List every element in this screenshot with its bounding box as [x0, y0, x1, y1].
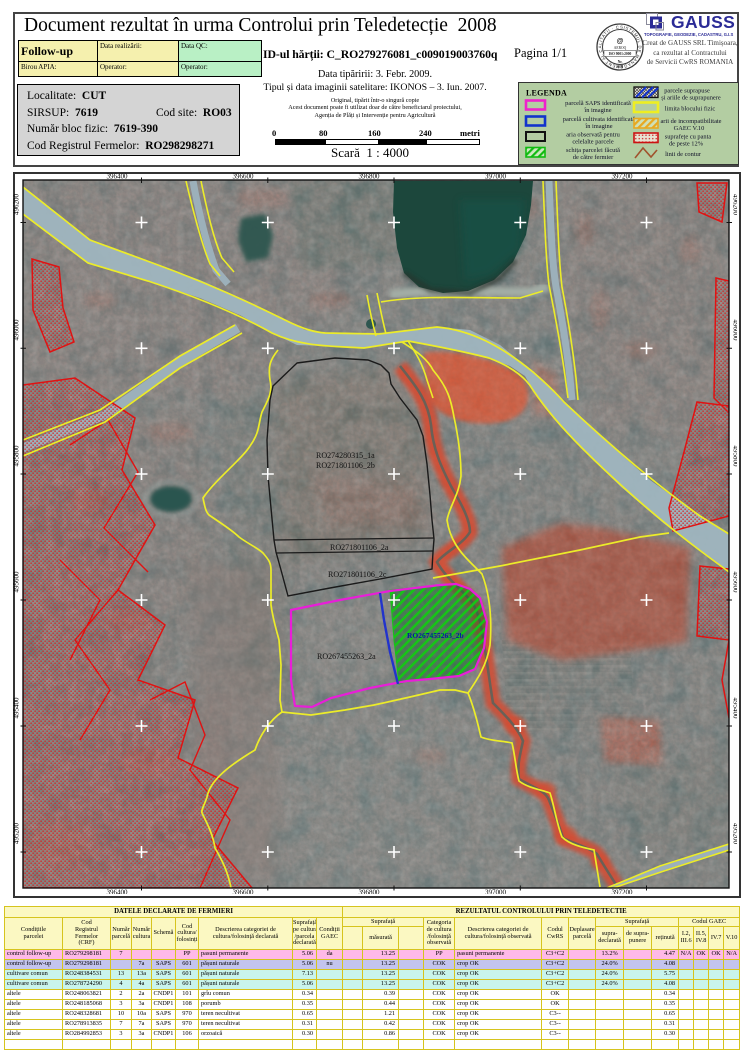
svg-text:018: 018: [617, 65, 623, 69]
svg-text:de către fermier: de către fermier: [573, 154, 614, 161]
svg-text:397200: 397200: [612, 889, 634, 895]
svg-text:RO271801106_2b: RO271801106_2b: [316, 461, 375, 470]
svg-text:ISO 9001:2000: ISO 9001:2000: [609, 52, 632, 56]
svg-text:celelalte parcele: celelalte parcele: [572, 139, 613, 146]
svg-text:parcele suprapuse: parcele suprapuse: [664, 88, 710, 95]
svg-text:în imagine: în imagine: [583, 107, 611, 114]
svg-text:495200: 495200: [13, 823, 21, 845]
svg-text:parcelă SAPS identificată: parcelă SAPS identificată: [565, 100, 631, 107]
svg-text:496000: 496000: [732, 320, 738, 342]
svg-text:în imagine: în imagine: [584, 123, 612, 130]
svg-text:496200: 496200: [13, 194, 21, 216]
svg-text:parcelă cultivata identificată: parcelă cultivata identificată: [563, 116, 636, 123]
svg-text:AEROQ: AEROQ: [614, 46, 627, 50]
svg-text:@: @: [617, 38, 624, 45]
svg-text:RO267455263_2b: RO267455263_2b: [407, 631, 464, 640]
svg-text:396600: 396600: [233, 889, 255, 895]
svg-text:496200: 496200: [732, 194, 738, 216]
svg-text:495200: 495200: [732, 823, 738, 845]
svg-text:aria observată pentru: aria observată pentru: [566, 132, 620, 139]
svg-text:495800: 495800: [732, 446, 738, 468]
svg-text:și ariile de suprapunere: și ariile de suprapunere: [661, 95, 721, 102]
svg-text:RO271801106_2a: RO271801106_2a: [330, 543, 389, 552]
svg-text:GAEC V.10: GAEC V.10: [674, 125, 705, 132]
svg-text:495800: 495800: [13, 445, 21, 467]
svg-text:arii de incompatibilitate: arii de incompatibilitate: [660, 118, 721, 125]
svg-text:limita blocului fizic: limita blocului fizic: [665, 106, 716, 113]
svg-text:495600: 495600: [13, 571, 21, 593]
svg-text:397000: 397000: [485, 889, 507, 895]
svg-text:396400: 396400: [107, 889, 129, 895]
svg-text:496000: 496000: [13, 319, 21, 341]
svg-text:396800: 396800: [359, 889, 381, 895]
svg-text:LEGENDA: LEGENDA: [526, 89, 567, 98]
svg-text:RO271801106_2c: RO271801106_2c: [328, 570, 387, 579]
svg-text:suprafețe cu panta: suprafețe cu panta: [665, 134, 712, 141]
svg-text:schița parcelei făcută: schița parcelei făcută: [566, 147, 620, 154]
svg-text:495600: 495600: [732, 572, 738, 594]
svg-text:RO274280315_1a: RO274280315_1a: [316, 451, 375, 460]
svg-text:Nr.: Nr.: [618, 60, 623, 64]
svg-text:RO267455263_2a: RO267455263_2a: [317, 652, 376, 661]
svg-text:linii de contur: linii de contur: [665, 151, 702, 158]
svg-text:de peste 12%: de peste 12%: [669, 141, 704, 148]
svg-text:495400: 495400: [13, 697, 21, 719]
svg-text:495400: 495400: [732, 698, 738, 720]
